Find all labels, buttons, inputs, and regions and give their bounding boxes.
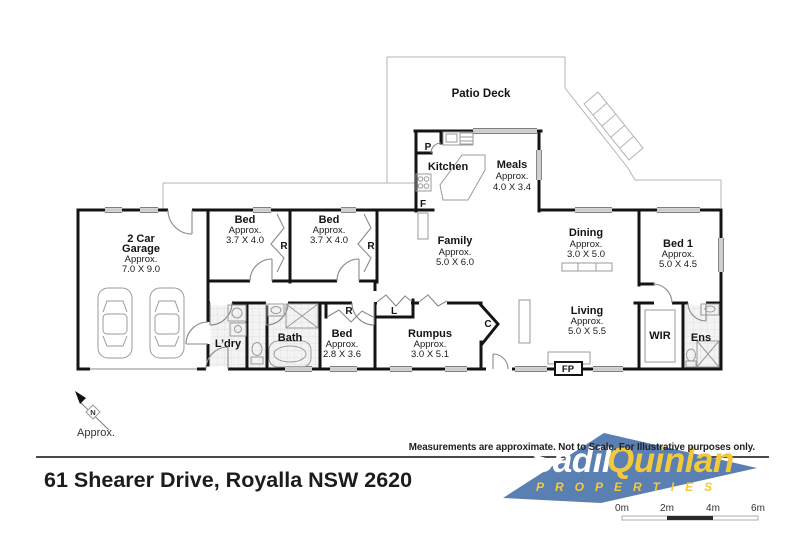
svg-text:7.0 X 9.0: 7.0 X 9.0 — [122, 264, 160, 275]
patio-deck-label: Patio Deck — [452, 88, 511, 100]
svg-text:5.0 X 4.5: 5.0 X 4.5 — [659, 259, 697, 270]
svg-text:3.7 X 4.0: 3.7 X 4.0 — [226, 235, 264, 246]
robe-marker: R — [280, 241, 288, 252]
room-label-laundry: L’dry — [215, 338, 242, 350]
room-label-patio-deck: Patio Deck — [452, 88, 511, 100]
svg-text:4m: 4m — [706, 503, 720, 514]
fireplace-marker: FP — [562, 364, 575, 375]
fridge-marker: F — [420, 199, 426, 210]
svg-text:5.0 X 5.5: 5.0 X 5.5 — [568, 326, 606, 337]
svg-text:4.0 X 3.4: 4.0 X 3.4 — [493, 182, 531, 193]
car-icon — [150, 288, 184, 358]
svg-text:Meals: Meals — [497, 159, 528, 171]
wall-openings — [90, 210, 706, 369]
svg-text:2.8 X 3.6: 2.8 X 3.6 — [323, 349, 361, 360]
room-label-meals: Meals Approx. 4.0 X 3.4 — [493, 159, 531, 193]
car-icon — [98, 288, 132, 358]
address-title: 61 Shearer Drive, Royalla NSW 2620 — [44, 468, 412, 492]
room-label-bed-c: Bed Approx. 2.8 X 3.6 — [323, 328, 361, 360]
room-label-bed-b: Bed Approx. 3.7 X 4.0 — [310, 214, 348, 246]
cupboard-marker: C — [484, 319, 491, 330]
room-label-garage: 2 Car Garage Approx. 7.0 X 9.0 — [122, 233, 160, 275]
walls — [78, 131, 721, 369]
room-label-dining: Dining Approx. 3.0 X 5.0 — [567, 227, 605, 260]
room-label-ens: Ens — [691, 332, 711, 344]
floorplan-page: Patio Deck 2 Car Garage Approx. 7.0 X 9.… — [0, 0, 800, 533]
compass-icon: N — [75, 391, 109, 430]
svg-text:Family: Family — [438, 235, 474, 247]
svg-text:Kitchen: Kitchen — [428, 161, 469, 173]
svg-text:6m: 6m — [751, 503, 765, 514]
compass-caption: Approx. — [77, 427, 115, 439]
linen-marker: L — [391, 306, 397, 317]
room-label-kitchen: Kitchen — [428, 161, 469, 173]
room-label-wir: WIR — [649, 330, 670, 342]
pantry-marker: P — [425, 142, 432, 153]
room-label-bath: Bath — [278, 332, 303, 344]
room-label-family: Family Approx. 5.0 X 6.0 — [436, 235, 474, 268]
room-label-bed-a: Bed Approx. 3.7 X 4.0 — [226, 214, 264, 246]
svg-text:3.0 X 5.1: 3.0 X 5.1 — [411, 349, 449, 360]
floorplan-drawing: Patio Deck 2 Car Garage Approx. 7.0 X 9.… — [0, 0, 800, 533]
svg-text:N: N — [90, 408, 95, 417]
robe-marker: R — [367, 241, 375, 252]
logo-subtitle: PROPERTIES — [536, 480, 723, 494]
room-label-bed-1: Bed 1 Approx. 5.0 X 4.5 — [659, 238, 697, 270]
svg-text:3.0 X 5.0: 3.0 X 5.0 — [567, 249, 605, 260]
svg-text:Dining: Dining — [569, 227, 603, 239]
svg-text:0m: 0m — [615, 503, 629, 514]
room-label-living: Living Approx. 5.0 X 5.5 — [568, 305, 606, 337]
svg-text:3.7 X 4.0: 3.7 X 4.0 — [310, 235, 348, 246]
robe-marker: R — [345, 306, 353, 317]
scale-bar: 0m 2m 4m 6m — [615, 503, 765, 520]
room-label-rumpus: Rumpus Approx. 3.0 X 5.1 — [408, 328, 452, 360]
svg-text:Approx.: Approx. — [496, 171, 529, 182]
svg-text:2m: 2m — [660, 503, 674, 514]
svg-text:5.0 X 6.0: 5.0 X 6.0 — [436, 257, 474, 268]
disclaimer-text: Measurements are approximate. Not to Sca… — [409, 442, 756, 453]
